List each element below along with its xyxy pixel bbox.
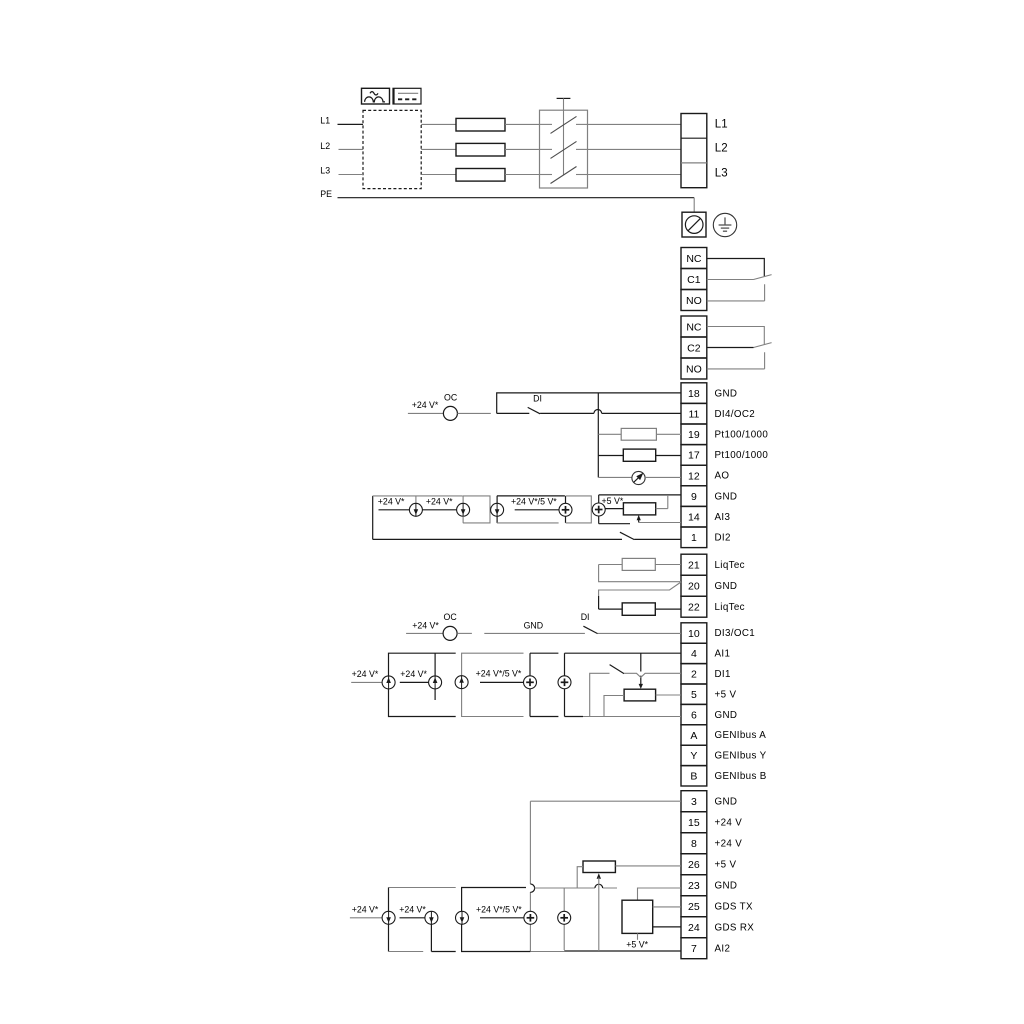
svg-text:21: 21 (688, 560, 700, 572)
svg-text:DI4/OC2: DI4/OC2 (715, 409, 756, 420)
svg-text:5: 5 (691, 689, 697, 701)
svg-text:11: 11 (688, 409, 699, 421)
svg-text:+24 V*: +24 V* (352, 669, 379, 679)
svg-text:GND: GND (715, 710, 738, 721)
svg-text:NO: NO (686, 364, 702, 376)
svg-text:L3: L3 (320, 166, 330, 176)
svg-text:+24 V*: +24 V* (412, 400, 439, 410)
svg-text:+5 V*: +5 V* (626, 939, 648, 949)
svg-text:+5 V: +5 V (715, 689, 737, 700)
svg-text:4: 4 (691, 648, 697, 660)
svg-text:L1: L1 (715, 118, 728, 130)
svg-text:2: 2 (691, 669, 697, 681)
svg-text:+24 V*/5 V*: +24 V*/5 V* (511, 496, 557, 506)
svg-text:LiqTec: LiqTec (715, 602, 745, 613)
svg-text:18: 18 (688, 388, 700, 400)
svg-text:10: 10 (688, 628, 700, 640)
svg-text:14: 14 (688, 512, 700, 524)
svg-text:26: 26 (688, 859, 700, 871)
svg-text:Pt100/1000: Pt100/1000 (715, 450, 769, 461)
svg-text:+5 V: +5 V (715, 859, 737, 870)
svg-text:PE: PE (320, 189, 332, 199)
svg-text:DI3/OC1: DI3/OC1 (715, 628, 756, 639)
svg-text:L2: L2 (320, 141, 330, 151)
svg-text:25: 25 (688, 901, 700, 913)
svg-text:L3: L3 (715, 168, 728, 180)
svg-text:22: 22 (688, 602, 700, 614)
svg-text:L2: L2 (715, 142, 728, 154)
svg-text:1: 1 (691, 532, 697, 544)
svg-text:NC: NC (686, 322, 702, 334)
svg-text:+24 V*: +24 V* (400, 669, 427, 679)
svg-text:20: 20 (688, 581, 700, 593)
svg-text:DI2: DI2 (715, 533, 731, 544)
svg-text:GND: GND (715, 880, 738, 891)
svg-text:12: 12 (688, 470, 700, 482)
svg-text:8: 8 (691, 838, 697, 850)
svg-text:9: 9 (691, 491, 697, 503)
svg-text:AI2: AI2 (715, 943, 731, 954)
svg-text:OC: OC (444, 393, 458, 403)
svg-text:23: 23 (688, 880, 700, 892)
svg-text:DI: DI (581, 612, 590, 622)
svg-text:GND: GND (715, 796, 738, 807)
svg-text:GND: GND (715, 388, 738, 399)
svg-text:GENIbus Y: GENIbus Y (715, 751, 767, 762)
svg-text:GENIbus A: GENIbus A (715, 730, 767, 741)
svg-text:AI1: AI1 (715, 649, 731, 660)
svg-text:Pt100/1000: Pt100/1000 (715, 430, 769, 441)
svg-text:+24 V*: +24 V* (412, 621, 439, 631)
svg-text:GND: GND (715, 581, 738, 592)
svg-text:+5 V*: +5 V* (602, 496, 624, 506)
svg-text:AI3: AI3 (715, 512, 731, 523)
svg-text:A: A (690, 730, 697, 742)
svg-text:+24 V: +24 V (715, 817, 743, 828)
svg-text:Y: Y (690, 750, 697, 762)
svg-text:C1: C1 (687, 274, 701, 286)
svg-text:7: 7 (691, 943, 697, 955)
svg-text:GENIbus B: GENIbus B (715, 771, 767, 782)
svg-text:15: 15 (688, 817, 700, 829)
svg-text:C2: C2 (687, 343, 701, 355)
svg-text:+24 V*/5 V*: +24 V*/5 V* (476, 668, 522, 678)
svg-text:NC: NC (686, 253, 702, 265)
svg-text:GDS TX: GDS TX (715, 901, 754, 912)
svg-text:24: 24 (688, 922, 700, 934)
svg-text:+24 V: +24 V (715, 838, 743, 849)
svg-text:NO: NO (686, 295, 702, 307)
svg-text:L1: L1 (320, 115, 330, 125)
svg-text:17: 17 (688, 450, 700, 462)
svg-text:LiqTec: LiqTec (715, 560, 745, 571)
svg-text:GND: GND (524, 621, 544, 631)
svg-text:3: 3 (691, 796, 697, 808)
svg-text:+24 V*: +24 V* (426, 496, 453, 506)
svg-text:OC: OC (444, 612, 458, 622)
svg-text:6: 6 (691, 709, 697, 721)
svg-text:B: B (690, 771, 697, 783)
svg-text:+24 V*/5 V*: +24 V*/5 V* (476, 905, 522, 915)
svg-text:GDS RX: GDS RX (715, 922, 755, 933)
svg-text:+24 V*: +24 V* (378, 496, 405, 506)
svg-text:+24 V*: +24 V* (399, 905, 426, 915)
svg-text:DI1: DI1 (715, 669, 731, 680)
svg-text:DI: DI (533, 393, 542, 403)
svg-text:+24 V*: +24 V* (352, 905, 379, 915)
svg-text:19: 19 (688, 429, 700, 441)
svg-text:GND: GND (715, 491, 738, 502)
svg-text:AO: AO (715, 471, 730, 482)
